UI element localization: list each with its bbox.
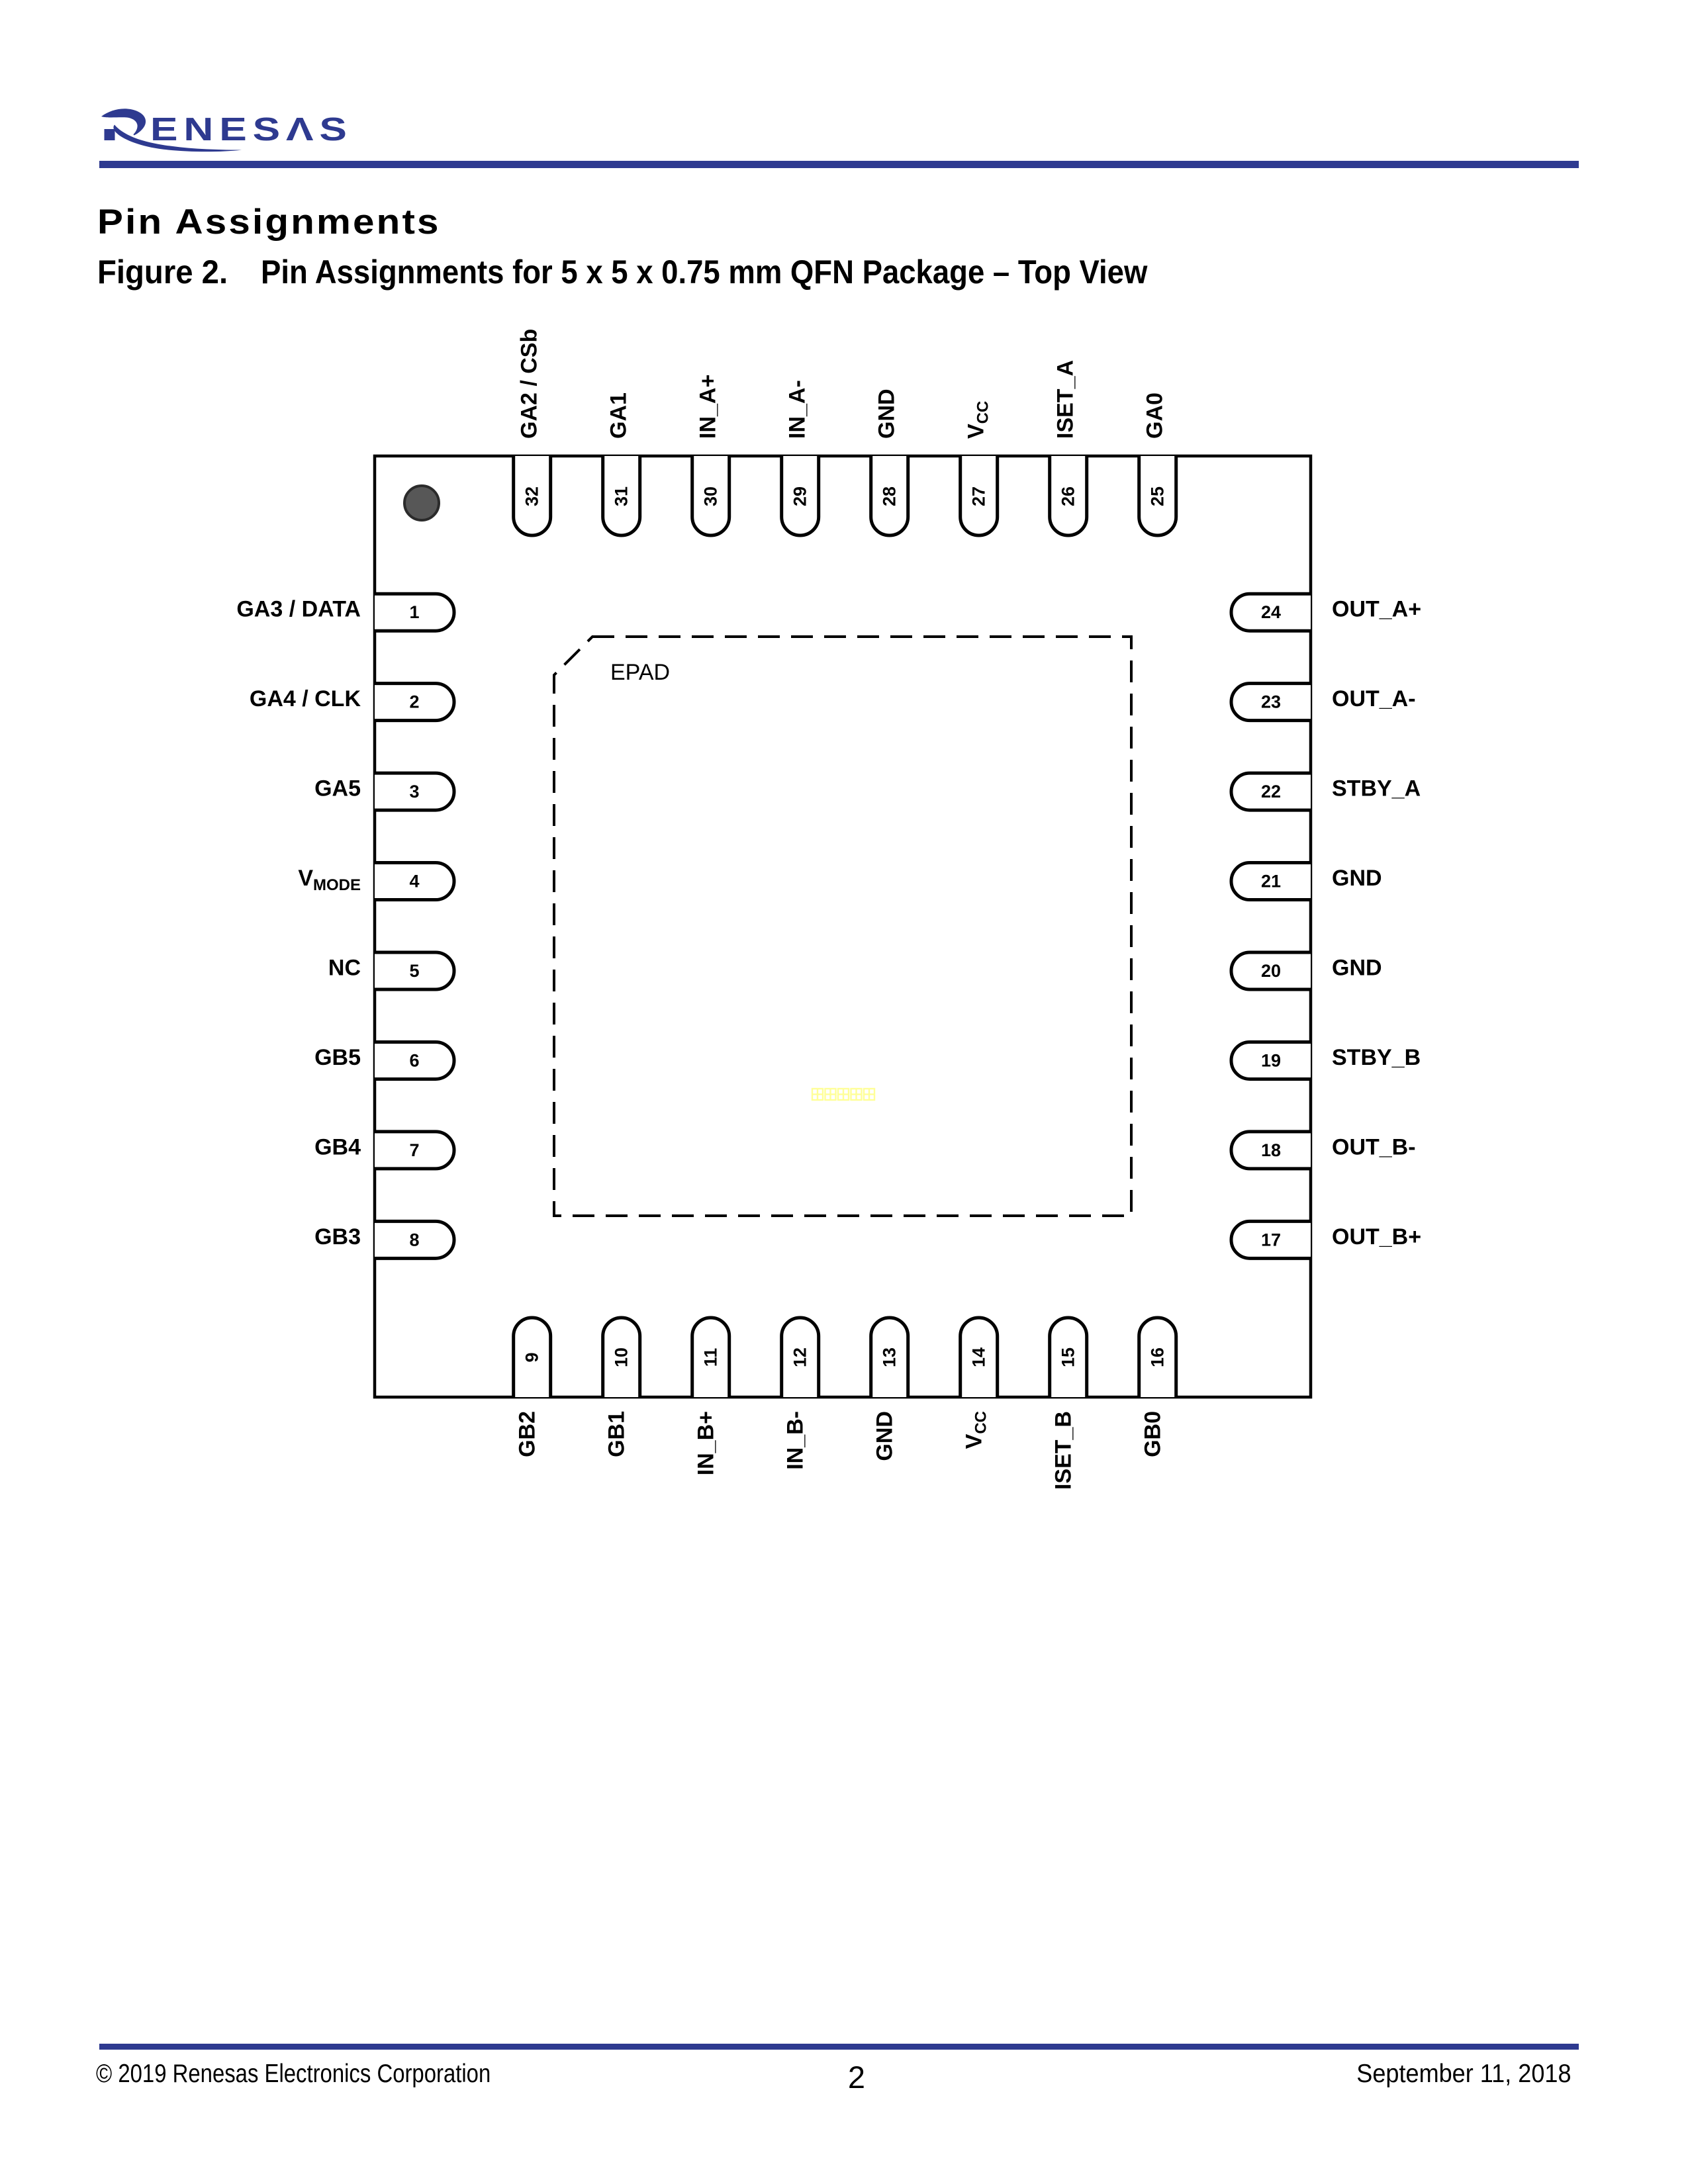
svg-text:GA4 / CLK: GA4 / CLK — [250, 686, 361, 711]
svg-text:IN_A+: IN_A+ — [696, 375, 721, 439]
svg-text:25: 25 — [1148, 486, 1168, 506]
svg-text:GB3: GB3 — [314, 1224, 361, 1250]
svg-text:4: 4 — [409, 872, 419, 891]
svg-text:31: 31 — [612, 486, 632, 506]
svg-text:IN_A-: IN_A- — [785, 380, 810, 439]
svg-text:9: 9 — [522, 1352, 542, 1362]
svg-text:IN_B+: IN_B+ — [694, 1411, 719, 1475]
svg-text:21: 21 — [1261, 872, 1281, 891]
svg-text:30: 30 — [701, 486, 721, 506]
svg-text:18: 18 — [1261, 1140, 1281, 1160]
svg-text:VCC: VCC — [962, 1411, 990, 1449]
svg-text:5: 5 — [409, 961, 419, 981]
svg-text:GND: GND — [874, 388, 900, 439]
svg-text:24: 24 — [1261, 602, 1281, 622]
svg-text:VMODE: VMODE — [298, 866, 361, 894]
svg-text:GA2 / CSb: GA2 / CSb — [517, 329, 542, 439]
svg-text:10: 10 — [612, 1347, 632, 1367]
svg-text:STBY_B: STBY_B — [1332, 1045, 1421, 1070]
svg-text:OUT_A-: OUT_A- — [1332, 686, 1416, 711]
svg-text:8: 8 — [409, 1230, 419, 1250]
svg-text:GA1: GA1 — [606, 392, 632, 439]
svg-text:3: 3 — [409, 782, 419, 801]
svg-text:GB0: GB0 — [1141, 1411, 1166, 1457]
svg-text:26: 26 — [1058, 486, 1078, 506]
svg-text:STBY_A: STBY_A — [1332, 776, 1421, 801]
svg-text:GB2: GB2 — [515, 1411, 540, 1457]
svg-text:GB4: GB4 — [314, 1134, 361, 1160]
svg-text:23: 23 — [1261, 692, 1281, 712]
svg-text:GB1: GB1 — [604, 1411, 630, 1457]
svg-text:20: 20 — [1261, 961, 1281, 981]
svg-text:27: 27 — [969, 486, 989, 506]
svg-text:GA3 / DATA: GA3 / DATA — [236, 597, 361, 622]
svg-text:ISET_A: ISET_A — [1053, 360, 1078, 439]
svg-text:NC: NC — [328, 956, 361, 981]
svg-text:GA5: GA5 — [314, 776, 361, 801]
svg-text:GND: GND — [1332, 956, 1382, 981]
svg-text:EPAD: EPAD — [610, 660, 670, 685]
svg-text:GB5: GB5 — [314, 1045, 361, 1070]
svg-text:VCC: VCC — [964, 401, 992, 439]
svg-text:7: 7 — [409, 1140, 419, 1160]
svg-text:12: 12 — [790, 1347, 810, 1367]
svg-text:29: 29 — [790, 486, 810, 506]
svg-text:22: 22 — [1261, 782, 1281, 801]
svg-text:32: 32 — [522, 486, 542, 506]
svg-text:OUT_A+: OUT_A+ — [1332, 597, 1421, 622]
svg-text:19: 19 — [1261, 1050, 1281, 1070]
svg-text:GA0: GA0 — [1143, 392, 1168, 439]
svg-text:1: 1 — [409, 602, 419, 622]
svg-text:13: 13 — [880, 1347, 900, 1367]
svg-text:28: 28 — [880, 486, 900, 506]
svg-text:11: 11 — [701, 1348, 721, 1367]
svg-text:OUT_B+: OUT_B+ — [1332, 1224, 1421, 1250]
svg-text:GND: GND — [1332, 866, 1382, 891]
svg-text:GND: GND — [872, 1411, 898, 1461]
svg-text:ISET_B: ISET_B — [1051, 1411, 1076, 1490]
svg-text:OUT_B-: OUT_B- — [1332, 1134, 1416, 1160]
svg-text:14: 14 — [969, 1347, 989, 1367]
svg-text:16: 16 — [1148, 1347, 1168, 1367]
svg-text:IN_B-: IN_B- — [783, 1411, 808, 1470]
svg-text:17: 17 — [1261, 1230, 1281, 1250]
svg-text:2: 2 — [409, 692, 419, 712]
svg-text:6: 6 — [409, 1050, 419, 1070]
svg-text:15: 15 — [1058, 1347, 1078, 1367]
